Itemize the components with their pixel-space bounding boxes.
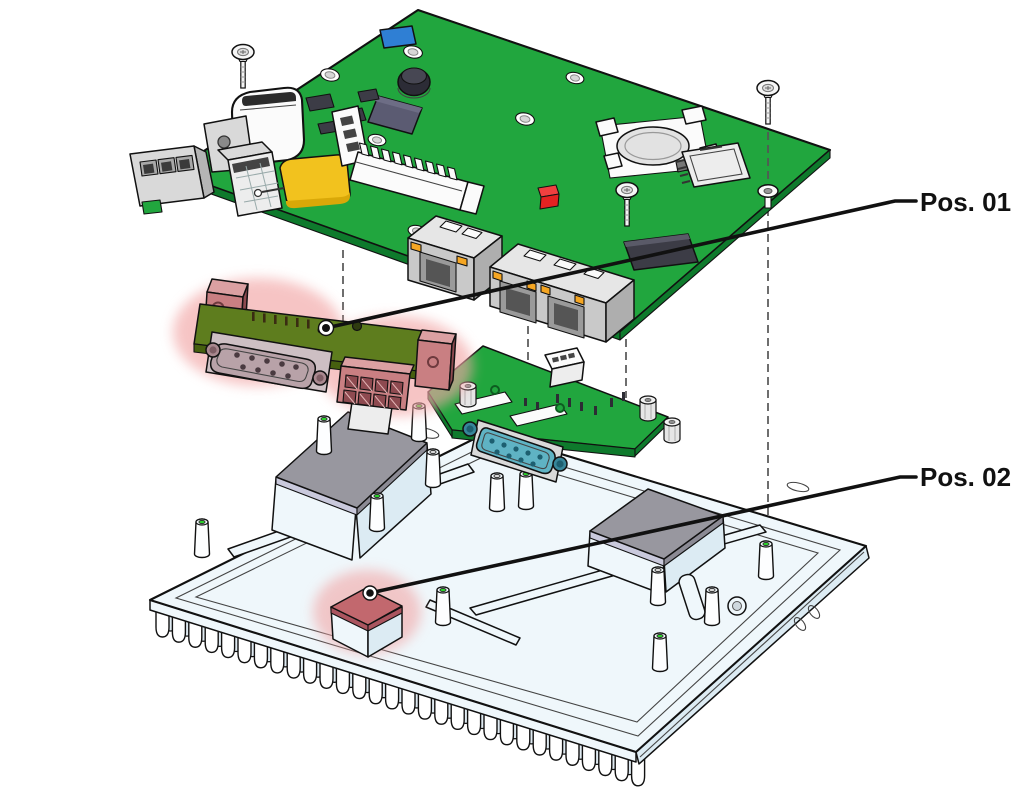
module-bracket-right [415, 330, 456, 390]
heatsink-deck [150, 432, 866, 752]
terminal-block-connector [130, 146, 214, 214]
via-pad [491, 386, 499, 394]
status-led [538, 185, 559, 209]
pos02-label: Pos. 02 [920, 462, 1011, 492]
screw-top-left [232, 45, 254, 89]
diagram-canvas: Pos. 01 Pos. 02 [0, 0, 1024, 798]
exploded-view-diagram: Pos. 01 Pos. 02 [0, 0, 1024, 798]
via-pad [556, 404, 564, 412]
pos01-label: Pos. 01 [920, 187, 1011, 217]
blue-component [380, 26, 416, 48]
screw-top-right [757, 81, 779, 125]
board-to-board-connector [545, 348, 584, 387]
serial-interface-module [173, 278, 473, 434]
deck-hole [786, 481, 809, 494]
module-terminal-block [337, 357, 414, 410]
